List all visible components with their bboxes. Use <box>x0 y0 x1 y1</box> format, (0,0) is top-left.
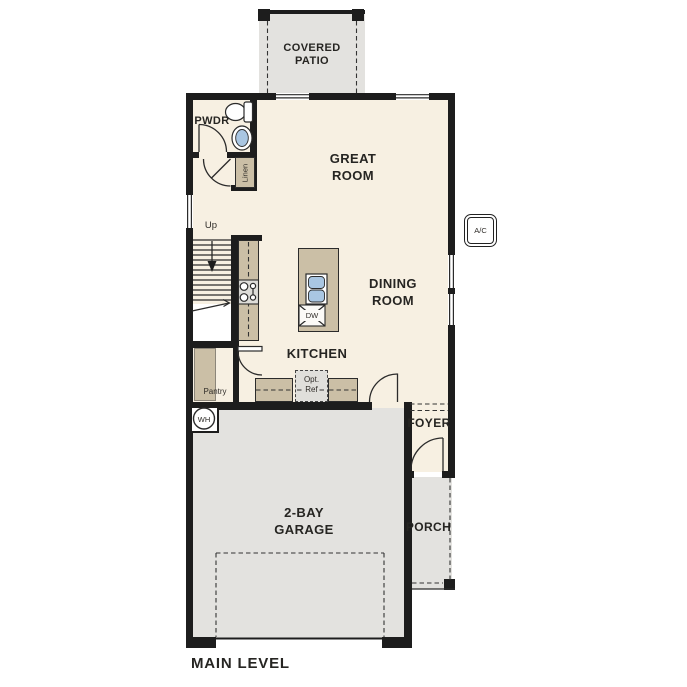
optional-ref-label: Opt. Ref <box>295 375 328 394</box>
kitchen-label: KITCHEN <box>277 346 357 361</box>
pantry-label: Pantry <box>196 387 234 396</box>
garage-label: 2-BAY GARAGE <box>252 505 356 538</box>
patio-post-left <box>258 9 270 21</box>
foyer-south-wall-right <box>442 471 455 478</box>
garage-south-wall-right <box>382 637 412 648</box>
water-heater-label: WH <box>192 415 216 424</box>
garage-south-wall-left <box>186 637 216 648</box>
stairs-up-label: Up <box>200 220 222 231</box>
foyer-floor <box>408 400 450 472</box>
dishwasher-label: DW <box>299 311 325 320</box>
foyer-south-wall-left <box>404 471 414 478</box>
counter-left <box>255 378 293 402</box>
patio-beam <box>259 10 365 14</box>
range-counter <box>238 240 259 341</box>
top-wall <box>186 93 455 100</box>
main-level-label: MAIN LEVEL <box>191 655 311 672</box>
porch-post <box>444 579 455 590</box>
powder-south-wall-a <box>193 152 199 158</box>
powder-room-label: PWDR <box>194 115 230 127</box>
stair-east-wall <box>231 235 238 348</box>
counter-right <box>328 378 358 402</box>
floor-plan: COVERED PATIO GREAT ROOM DINING ROOM KIT… <box>0 0 687 687</box>
left-wall <box>186 93 193 648</box>
ac-unit-label: A/C <box>464 226 497 235</box>
covered-patio-label: COVERED PATIO <box>261 42 363 68</box>
dining-room-label: DINING ROOM <box>353 276 433 309</box>
linen-label: Linen <box>240 159 250 186</box>
foyer-label: FOYER <box>406 416 452 430</box>
porch-label: PORCH <box>405 520 452 534</box>
great-room-label: GREAT ROOM <box>313 151 393 184</box>
patio-post-right <box>352 9 364 21</box>
